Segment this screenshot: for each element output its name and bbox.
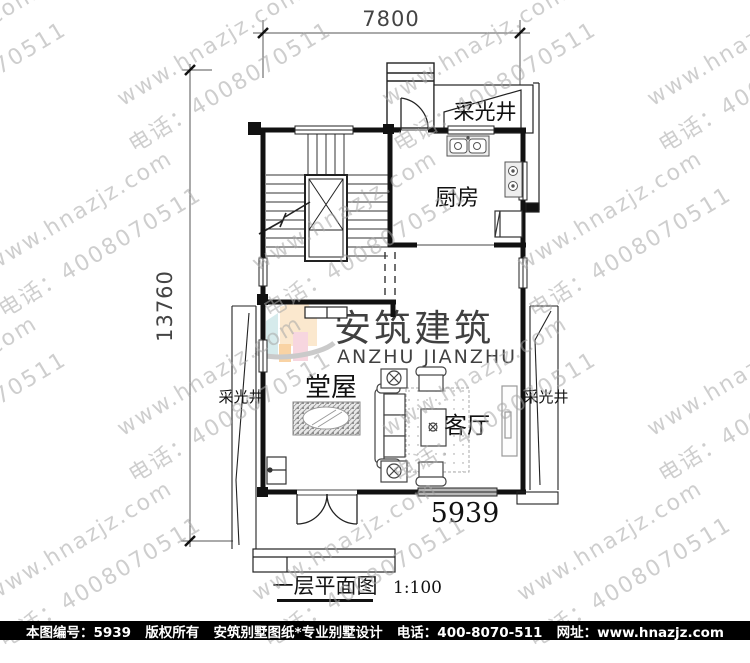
dashed-opening: [385, 252, 395, 299]
footer-phone: 电话：400-8070-511: [397, 621, 543, 641]
hall-side-cabinet: [267, 457, 286, 484]
kitchen-sink: [447, 136, 489, 156]
entry-porch-steps: [253, 549, 395, 572]
room-label-living: 客厅: [444, 413, 490, 439]
dimension-top-value: 7800: [362, 7, 419, 31]
dimension-left: [181, 64, 233, 547]
lightwell-left: [232, 306, 256, 549]
footer-copyright: 版权所有: [145, 621, 199, 641]
room-label-lightwell-left: 采光井: [218, 388, 263, 406]
room-label-lightwell-top: 采光井: [454, 100, 517, 124]
logo-text-cn: 安筑建筑: [334, 307, 494, 350]
room-label-main-hall: 堂屋: [305, 373, 357, 403]
tv-console: [502, 386, 517, 456]
footer-bar: 本图编号：5939 版权所有 安筑别墅图纸*专业别墅设计 电话：400-8070…: [0, 621, 750, 640]
kitchen-fridge: [495, 211, 522, 237]
anzhu-logo: 安筑建筑 ANZHU JIANZHU: [256, 299, 517, 368]
footer-site: 网址：www.hnazjz.com: [557, 621, 724, 641]
plan-scale: 1:100: [393, 578, 442, 598]
footer-company: 安筑别墅图纸*专业别墅设计: [214, 621, 383, 641]
window-stair-left: [259, 258, 267, 286]
footer-drawing-id: 本图编号：5939: [26, 621, 131, 641]
dimension-left-value: 13760: [153, 270, 177, 342]
logo-text-en: ANZHU JIANZHU: [337, 346, 517, 368]
room-label-kitchen: 厨房: [435, 186, 479, 211]
stair-shaft: [305, 175, 347, 261]
hall-cabinet-top: [305, 307, 347, 318]
floorplan-canvas: 安筑建筑 ANZHU JIANZHU 7800 13760: [0, 0, 750, 640]
drawing-number: 5939: [431, 498, 500, 529]
window-living-right: [519, 258, 527, 288]
window-hall-left: [259, 340, 267, 372]
entrance-double-door: [297, 494, 357, 524]
logo-cyan-bar-icon: [266, 313, 278, 359]
room-label-lightwell-right: 采光井: [523, 388, 568, 406]
plan-title-underline: [277, 599, 373, 602]
window-stair-top: [295, 126, 353, 134]
hall-rug: [293, 402, 360, 435]
window-kitchen-top: [448, 126, 494, 134]
stairwell: [259, 132, 388, 261]
window-living-bottom: [418, 488, 497, 496]
floorplan-drawing: 安筑建筑 ANZHU JIANZHU 7800 13760: [0, 0, 750, 640]
kitchen-stove: [505, 162, 522, 197]
plan-title: 一层平面图: [273, 574, 378, 598]
